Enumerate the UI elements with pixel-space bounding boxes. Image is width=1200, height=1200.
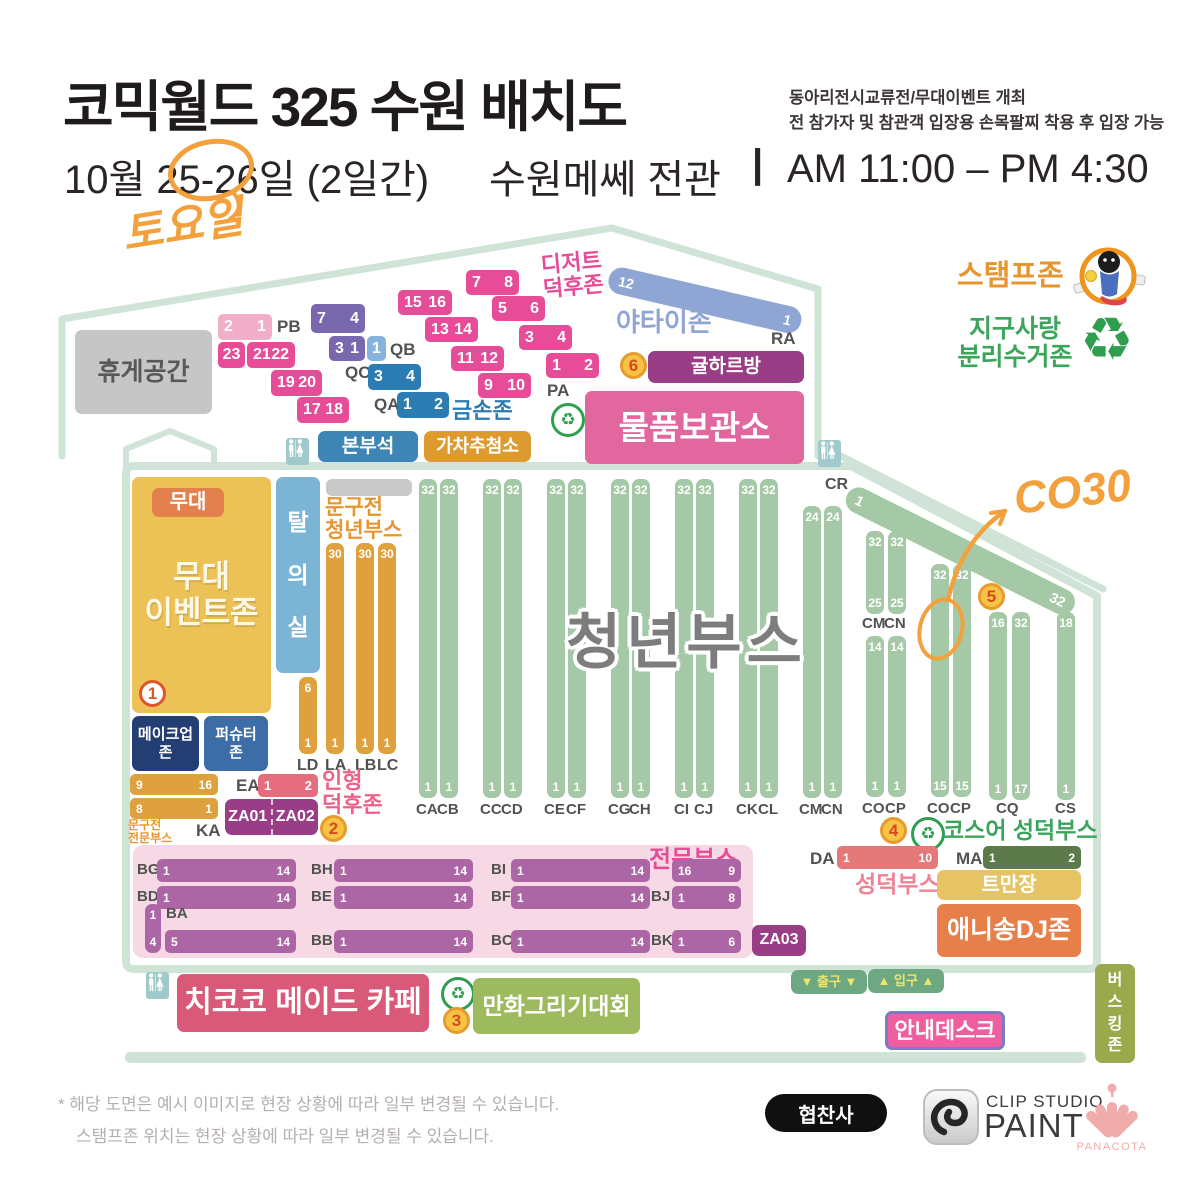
row-bj: 18 xyxy=(672,886,741,909)
row-bj-upper: 169 xyxy=(672,859,741,882)
col-co2: 3215 xyxy=(931,564,949,797)
label-cb: CB xyxy=(437,801,459,818)
row-ka-9-16: 916 xyxy=(130,774,218,795)
col-ca: 321 xyxy=(419,479,437,798)
num-1: 1 xyxy=(139,680,166,707)
booth-d-1-2: 12 xyxy=(546,353,599,378)
row-bb: 114 xyxy=(334,930,473,953)
label-bc: BC xyxy=(491,932,513,949)
label-stationery-youth: 문구전 청년부스 xyxy=(325,496,402,542)
num-2: 2 xyxy=(320,815,347,842)
row-bc: 114 xyxy=(511,930,650,953)
label-da: DA xyxy=(810,849,835,869)
label-ea: EA xyxy=(236,776,260,796)
label-bj: BJ xyxy=(651,888,670,905)
row-ma: 12 xyxy=(983,846,1081,869)
num-5: 5 xyxy=(978,583,1005,610)
label-qc: QC xyxy=(345,363,371,383)
num-3: 3 xyxy=(443,1007,470,1034)
label-pa: PA xyxy=(547,381,569,401)
label-bd: BD xyxy=(137,888,159,905)
row-bk: 16 xyxy=(672,930,741,953)
restroom-icon xyxy=(146,972,169,999)
label-co1: CO xyxy=(862,800,885,817)
zone-busking: 버 스 킹 존 xyxy=(1095,964,1135,1063)
label-cr: CR xyxy=(825,476,848,494)
booth-19-20: 1920 xyxy=(271,370,322,396)
label-doll-zone: 인형 덕후존 xyxy=(322,769,383,817)
label-ci: CI xyxy=(674,801,689,818)
label-bk: BK xyxy=(651,932,673,949)
booth-qa-1-2: 12 xyxy=(397,392,449,418)
row-ea: 12 xyxy=(258,774,318,797)
booth-d-11-12: 1112 xyxy=(451,346,504,371)
panacota-logo-icon xyxy=(1076,1078,1148,1142)
col-cd: 321 xyxy=(504,479,522,798)
label-co2: CO xyxy=(927,800,950,817)
zone-info-desk: 안내데스크 xyxy=(885,1011,1005,1050)
label-ce: CE xyxy=(544,801,565,818)
label-ck: CK xyxy=(736,801,758,818)
footer-note1: * 해당 도면은 예시 이미지로 현장 상황에 따라 일부 변경될 수 있습니다… xyxy=(58,1090,559,1115)
booth-23: 23 xyxy=(218,342,245,368)
col-cp1: 141 xyxy=(888,636,906,797)
num-4: 4 xyxy=(880,817,907,844)
label-bb: BB xyxy=(311,932,333,949)
label-dessert-zone: 디저트 덕후존 xyxy=(540,248,605,301)
label-stamp-zone: 스탬프존 xyxy=(957,261,1064,293)
label-cd: CD xyxy=(501,801,523,818)
label-cs: CS xyxy=(1055,800,1076,817)
label-bh: BH xyxy=(311,861,333,878)
label-cc: CC xyxy=(480,801,502,818)
row-ba: 514 xyxy=(165,930,296,953)
label-cj: CJ xyxy=(694,801,713,818)
booth-d-13-14: 1314 xyxy=(425,317,478,342)
label-bf: BF xyxy=(491,888,511,905)
booth-d-5-6: 56 xyxy=(492,296,545,321)
col-ld: 61 xyxy=(299,677,317,754)
col-ce: 321 xyxy=(547,479,565,798)
label-cf: CF xyxy=(566,801,586,818)
col-lc: 301 xyxy=(378,543,396,754)
zone-entrance: ▲ 입구 ▲ xyxy=(868,969,944,993)
row-bh: 114 xyxy=(334,859,473,882)
footer-note2: 스탬프존 위치는 현장 상황에 따라 일부 변경될 수 있습니다. xyxy=(76,1122,494,1147)
label-cl: CL xyxy=(758,801,778,818)
zone-chikoko-cafe: 치코코 메이드 카페 xyxy=(177,974,429,1032)
label-seongdeok: 성덕부스 xyxy=(855,872,940,897)
booth-pb-2-1: 21 xyxy=(218,314,272,340)
label-qb: QB xyxy=(390,340,416,360)
label-qa: QA xyxy=(374,395,400,415)
col-cq1: 161 xyxy=(989,612,1007,800)
col-la: 301 xyxy=(326,543,344,754)
booth-d-15-16: 1516 xyxy=(398,290,452,315)
label-cp1: CP xyxy=(885,800,906,817)
booth-d-9-10: 910 xyxy=(478,373,531,398)
zone-pursuiter: 퍼슈터 존 xyxy=(204,716,268,771)
zone-gacha: 가차추첨소 xyxy=(424,431,531,462)
zone-gyulharbang: 귤하르방 xyxy=(648,351,804,383)
zone-rest-area: 휴게공간 xyxy=(75,330,212,414)
col-cq2: 3217 xyxy=(1012,612,1030,800)
booth-qb-1: 1 xyxy=(367,336,386,361)
label-ra: RA xyxy=(771,329,796,349)
row-bi: 114 xyxy=(511,859,650,882)
label-youth-booth: 청년부스 xyxy=(566,610,807,676)
col-cc: 321 xyxy=(483,479,501,798)
label-ma: MA xyxy=(956,849,982,869)
row-bf: 114 xyxy=(511,886,650,909)
label-cm2: CM xyxy=(862,615,885,632)
row-da: 110 xyxy=(837,846,938,869)
booth-q-3-1: 31 xyxy=(329,336,365,361)
booth-q-7-4: 74 xyxy=(311,304,365,333)
label-cq: CQ xyxy=(996,800,1019,817)
panacota-text: PANACOTA xyxy=(1076,1141,1148,1153)
row-ka-8-1: 81 xyxy=(130,798,218,819)
zone-manhwa-contest: 만화그리기대회 xyxy=(473,978,640,1034)
zone-fitting-room: 탈 의 실 xyxy=(276,477,320,673)
label-ld: LD xyxy=(297,757,318,775)
num-6: 6 xyxy=(620,352,647,379)
zone-anisong-dj: 애니송DJ존 xyxy=(937,904,1081,957)
recycle-icon: ♻ xyxy=(441,977,475,1011)
row-be: 114 xyxy=(334,886,473,909)
booth-17-18: 1718 xyxy=(297,397,349,423)
zone-exit: ▼ 출구 ▼ xyxy=(791,970,867,994)
zone-za03: ZA03 xyxy=(752,925,806,956)
label-stationery-pro: 문구전 전문부스 xyxy=(128,819,172,845)
booth-d-7-8: 78 xyxy=(466,270,519,295)
label-recycle-zone: 지구사랑 분리수거존 xyxy=(953,316,1077,371)
col-cs: 181 xyxy=(1057,612,1075,800)
clip-studio-paint-text: PAINT xyxy=(984,1107,1084,1145)
label-ch: CH xyxy=(629,801,651,818)
sponsor-badge: 협찬사 xyxy=(765,1094,887,1132)
recycle-symbol-icon: ♻ xyxy=(1080,305,1134,375)
label-ka: KA xyxy=(196,821,221,841)
col-cn: 241 xyxy=(824,506,842,798)
label-ca: CA xyxy=(416,801,438,818)
col-cm2: 3225 xyxy=(866,531,884,614)
zone-storage: 물품보관소 xyxy=(585,391,804,464)
label-pb: PB xyxy=(277,317,301,337)
label-cm: CM xyxy=(799,801,822,818)
label-be: BE xyxy=(311,888,332,905)
col-co1: 141 xyxy=(866,636,884,797)
recycle-icon: ♻ xyxy=(551,403,585,437)
label-geumson-zone: 금손존 xyxy=(452,399,513,423)
label-bi: BI xyxy=(491,861,506,878)
zone-stage: 무대 xyxy=(152,488,224,517)
booth-21-22: 2122 xyxy=(247,342,295,368)
col-ba: 14 xyxy=(145,904,161,953)
label-cp2: CP xyxy=(950,800,971,817)
label-cg: CG xyxy=(608,801,631,818)
restroom-icon xyxy=(818,440,841,467)
zone-za01-za02: ZA01ZA02 xyxy=(225,799,318,835)
col-cb: 321 xyxy=(440,479,458,798)
col-cp2: 3215 xyxy=(953,564,971,797)
floor-map: ♻ ♻ ♻ ♻ 휴게공간21PB2321221920171874311QBQC3… xyxy=(0,0,1200,1200)
booth-d-3-4: 34 xyxy=(519,325,572,350)
clip-studio-icon xyxy=(922,1088,980,1146)
col-cn2: 3225 xyxy=(888,531,906,614)
gray-bar xyxy=(326,479,412,496)
stamp-mascot-icon xyxy=(1072,246,1148,308)
label-cn2: CN xyxy=(884,615,906,632)
booth-qc-3-4: 34 xyxy=(368,364,421,390)
zone-makeup: 메이크업 존 xyxy=(132,716,199,771)
zone-hq: 본부석 xyxy=(318,431,418,462)
col-lb: 301 xyxy=(356,543,374,754)
row-bg: 114 xyxy=(157,859,296,882)
label-cn: CN xyxy=(821,801,843,818)
zone-teumanjang: 트만장 xyxy=(937,870,1081,900)
label-cos-seongdeok: 코스어 성덕부스 xyxy=(943,818,1098,843)
label-ba: BA xyxy=(166,905,188,922)
restroom-icon xyxy=(286,438,309,465)
